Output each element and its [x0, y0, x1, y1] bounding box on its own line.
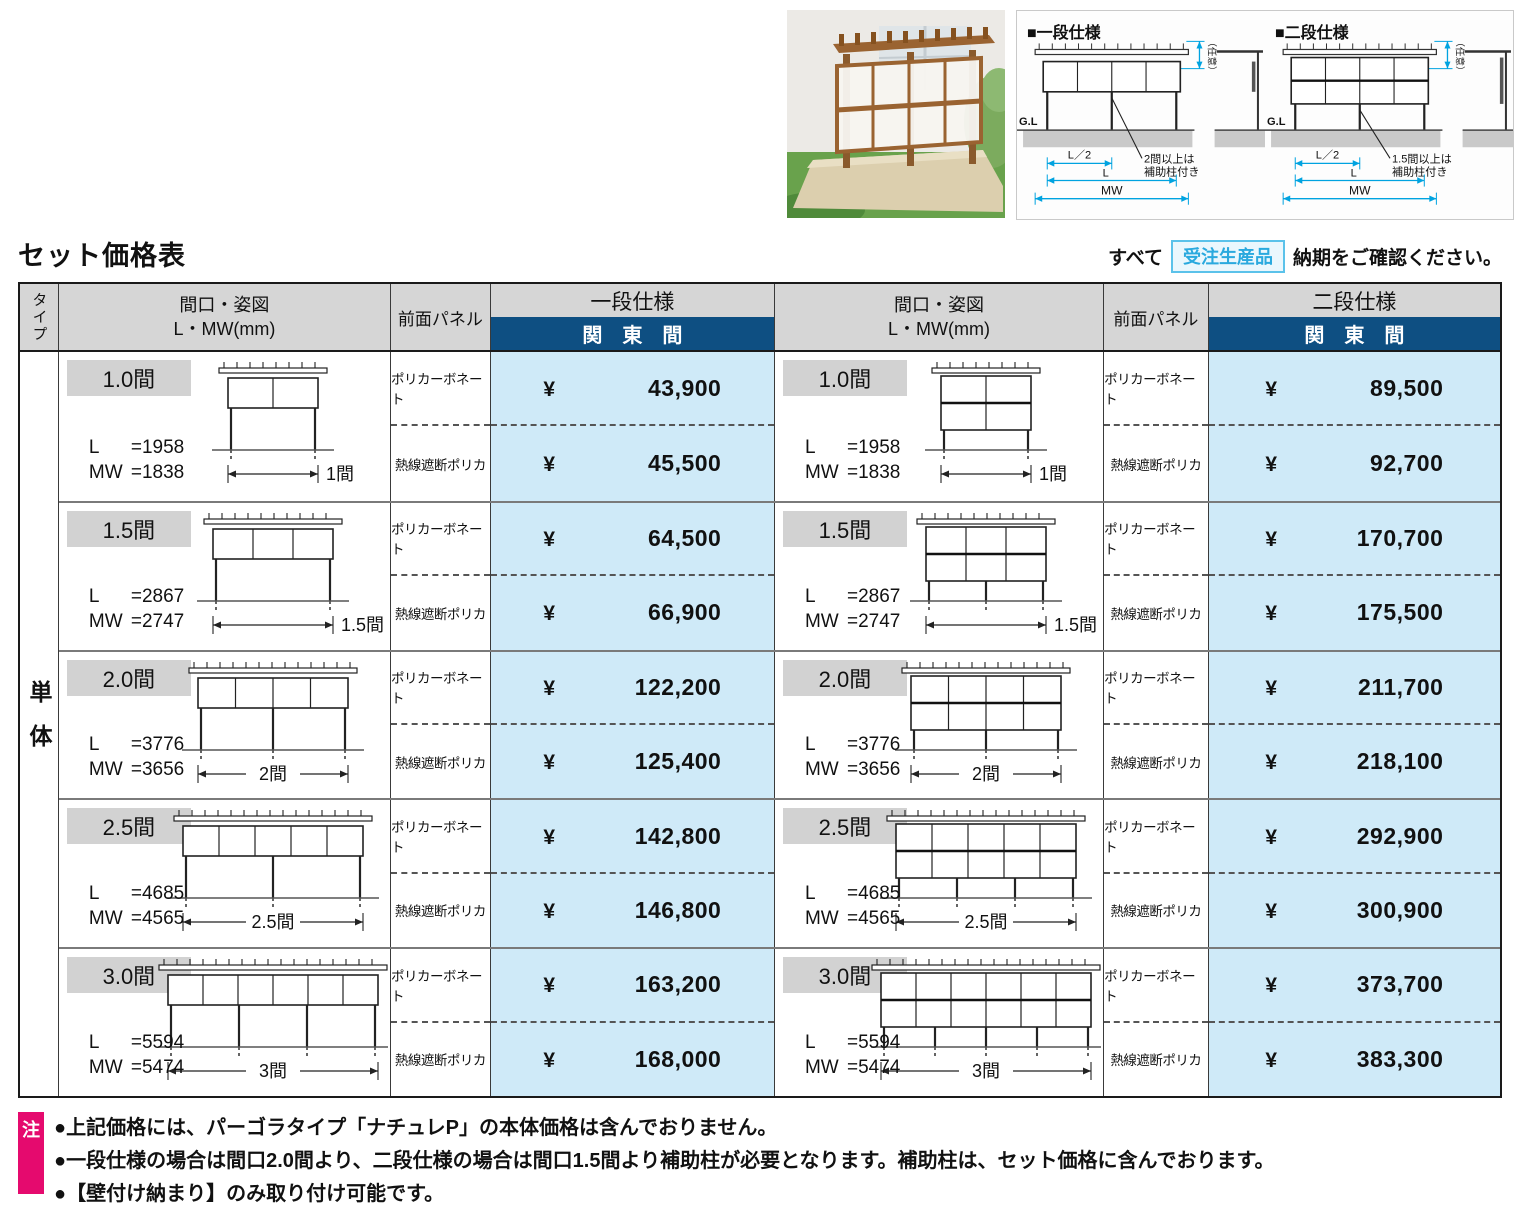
table-row: 1.0間 1間 L =1958 MW =1838 ポリカーボネート 熱線遮断ポリ…	[59, 352, 1500, 501]
header-one-tier: 一段仕様 関 東 間	[491, 284, 775, 350]
price-value: 373,700	[1357, 971, 1444, 998]
price-cell-two-tier: ¥373,700 ¥383,300	[1209, 949, 1500, 1096]
table-header: タイプ 間口・姿図 L・MW(mm) 前面パネル 一段仕様 関 東 間 間口・姿…	[20, 284, 1500, 352]
dim-l-name: L	[89, 435, 131, 460]
yen-sign: ¥	[543, 974, 555, 998]
panel-type-cell-one-tier: ポリカーボネート 熱線遮断ポリカ	[391, 352, 491, 501]
yen-sign: ¥	[1265, 974, 1277, 998]
price-value: 64,500	[648, 525, 721, 552]
dim-l-name: L	[805, 881, 847, 906]
table-row: 1.5間 1.5間 L =2867 MW =2747 ポリカーボネート 熱線遮断…	[59, 501, 1500, 650]
dim-l-name: L	[805, 435, 847, 460]
svg-text:3間: 3間	[259, 1061, 287, 1081]
dim-l-value: =4685	[847, 881, 900, 906]
table-row: 2.0間 2間 L =3776 MW =3656 ポリカーボネート 熱線遮断ポリ…	[59, 650, 1500, 799]
price-cell-one-tier: ¥163,200 ¥168,000	[491, 949, 775, 1096]
price-value: 383,300	[1357, 1046, 1444, 1073]
dim-l-value: =1958	[847, 435, 900, 460]
dim-l-value: =5594	[847, 1030, 900, 1055]
yen-sign: ¥	[543, 677, 555, 701]
panel-type-cell-one-tier: ポリカーボネート 熱線遮断ポリカ	[391, 949, 491, 1096]
yen-sign: ¥	[543, 602, 555, 626]
price-cell-one-tier: ¥64,500 ¥66,900	[491, 503, 775, 650]
dim-mw-value: =4565	[131, 906, 184, 931]
panel-type-polycarbonate: ポリカーボネート	[1104, 652, 1208, 725]
panel-type-heatblock: 熱線遮断ポリカ	[1104, 874, 1208, 947]
svg-text:（任意）: （任意）	[1206, 37, 1218, 75]
panel-type-cell-two-tier: ポリカーボネート 熱線遮断ポリカ	[1104, 800, 1209, 947]
facade-sketch-one-tier: 1間	[158, 354, 388, 496]
svg-text:MW: MW	[1101, 184, 1123, 198]
dim-mw-name: MW	[805, 906, 847, 931]
order-note-prefix: すべて	[1108, 243, 1163, 270]
price-value: 92,700	[1370, 450, 1443, 477]
price-cell-two-tier: ¥89,500 ¥92,700	[1209, 352, 1500, 501]
price-value: 175,500	[1357, 599, 1444, 626]
facade-sketch-one-tier: 2間	[158, 654, 388, 796]
yen-sign: ¥	[1265, 677, 1277, 701]
dimension-text: L =3776 MW =3656	[805, 732, 900, 782]
table-body: 単体 1.0間 1間 L =1958 MW =1838 ポリカーボネート 熱線遮…	[20, 352, 1500, 1096]
price-one-tier-poly: ¥43,900	[491, 352, 774, 426]
price-one-tier-poly: ¥163,200	[491, 949, 774, 1022]
dimension-text: L =1958 MW =1838	[805, 435, 900, 485]
svg-text:2.5間: 2.5間	[965, 912, 1008, 932]
dimension-text: L =4685 MW =4565	[805, 881, 900, 931]
svg-text:1.5間以上は: 1.5間以上は	[1392, 152, 1452, 165]
yen-sign: ¥	[543, 826, 555, 850]
svg-text:1間: 1間	[1039, 464, 1067, 484]
facade-sketch-two-tier: 2間	[871, 654, 1101, 796]
spec-diagram-box: ■一段仕様 （任意）G.L2間以上は補助柱付きL／2LMW ■二段仕様 （任意）…	[1016, 10, 1514, 220]
header-facade-two: 間口・姿図 L・MW(mm)	[775, 284, 1104, 350]
yen-sign: ¥	[1265, 900, 1277, 924]
price-value: 125,400	[635, 748, 722, 775]
svg-text:L: L	[1351, 167, 1357, 179]
price-value: 45,500	[648, 450, 721, 477]
panel-type-heatblock: 熱線遮断ポリカ	[391, 725, 490, 798]
panel-type-heatblock: 熱線遮断ポリカ	[391, 576, 490, 649]
header-panel-one-label: 前面パネル	[398, 305, 483, 330]
dim-l-value: =5594	[131, 1030, 184, 1055]
price-value: 218,100	[1357, 748, 1444, 775]
dimension-text: L =3776 MW =3656	[89, 732, 184, 782]
header-facade-line2: L・MW(mm)	[173, 317, 275, 341]
yen-sign: ¥	[543, 453, 555, 477]
svg-text:G.L: G.L	[1267, 116, 1286, 128]
price-value: 163,200	[635, 971, 722, 998]
header-panel-two: 前面パネル	[1104, 284, 1209, 350]
panel-type-cell-one-tier: ポリカーボネート 熱線遮断ポリカ	[391, 652, 491, 799]
order-note: すべて 受注生産品 納期をご確認ください。	[1108, 240, 1502, 273]
panel-type-heatblock: 熱線遮断ポリカ	[1104, 426, 1208, 500]
svg-text:補助柱付き: 補助柱付き	[1392, 164, 1447, 178]
dim-l-name: L	[805, 1030, 847, 1055]
svg-text:（任意）: （任意）	[1454, 37, 1466, 75]
price-cell-two-tier: ¥292,900 ¥300,900	[1209, 800, 1500, 947]
svg-text:MW: MW	[1349, 184, 1371, 198]
facade-cell-two-tier: 1.0間 1間 L =1958 MW =1838	[775, 352, 1104, 501]
panel-type-cell-two-tier: ポリカーボネート 熱線遮断ポリカ	[1104, 503, 1209, 650]
facade-cell-two-tier: 2.5間 2.5間 L =4685 MW =4565	[775, 800, 1104, 947]
panel-type-cell-two-tier: ポリカーボネート 熱線遮断ポリカ	[1104, 652, 1209, 799]
dim-mw-value: =3656	[847, 757, 900, 782]
panel-type-polycarbonate: ポリカーボネート	[391, 800, 490, 873]
facade-sketch-two-tier: 1.5間	[871, 505, 1101, 647]
price-value: 168,000	[635, 1046, 722, 1073]
panel-type-heatblock: 熱線遮断ポリカ	[391, 1023, 490, 1096]
panel-type-cell-two-tier: ポリカーボネート 熱線遮断ポリカ	[1104, 949, 1209, 1096]
dim-mw-value: =2747	[131, 609, 184, 634]
header-two-tier-kanto: 関 東 間	[1209, 317, 1500, 350]
price-one-tier-poly: ¥64,500	[491, 503, 774, 576]
dim-mw-name: MW	[805, 757, 847, 782]
dim-mw-name: MW	[89, 1055, 131, 1080]
yen-sign: ¥	[1265, 1049, 1277, 1073]
dimension-text: L =5594 MW =5474	[805, 1030, 900, 1080]
svg-text:3間: 3間	[972, 1061, 1000, 1081]
page-title: セット価格表	[18, 234, 186, 273]
dim-mw-value: =2747	[847, 609, 900, 634]
panel-type-polycarbonate: ポリカーボネート	[391, 652, 490, 725]
table-row: 3.0間 3間 L =5594 MW =5474 ポリカーボネート 熱線遮断ポリ…	[59, 947, 1500, 1096]
type-value: 単体	[22, 680, 56, 767]
yen-sign: ¥	[1265, 453, 1277, 477]
price-two-tier-poly: ¥292,900	[1209, 800, 1500, 873]
panel-type-cell-one-tier: ポリカーボネート 熱線遮断ポリカ	[391, 503, 491, 650]
dimension-text: L =2867 MW =2747	[89, 584, 184, 634]
price-two-tier-heat: ¥300,900	[1209, 874, 1500, 947]
dim-mw-name: MW	[89, 906, 131, 931]
yen-sign: ¥	[1265, 378, 1277, 402]
note-lines: ●上記価格には、パーゴラタイプ「ナチュレP」の本体価格は含んでおりません。 ●一…	[54, 1112, 1275, 1210]
price-one-tier-poly: ¥142,800	[491, 800, 774, 873]
diagram-one-tier: ■一段仕様 （任意）G.L2間以上は補助柱付きL／2LMW	[1017, 11, 1265, 219]
note-line: ●【壁付け納まり】のみ取り付け可能です。	[54, 1178, 1275, 1210]
yen-sign: ¥	[1265, 751, 1277, 775]
panel-type-polycarbonate: ポリカーボネート	[1104, 800, 1208, 873]
dim-mw-value: =5474	[847, 1055, 900, 1080]
facade-cell-one-tier: 1.0間 1間 L =1958 MW =1838	[59, 352, 391, 501]
header-facade-line1: 間口・姿図	[173, 293, 275, 317]
facade-cell-one-tier: 2.5間 2.5間 L =4685 MW =4565	[59, 800, 391, 947]
facade-cell-one-tier: 3.0間 3間 L =5594 MW =5474	[59, 949, 391, 1096]
svg-text:2間以上は: 2間以上は	[1144, 152, 1194, 165]
yen-sign: ¥	[543, 378, 555, 402]
product-photo-art	[787, 10, 1005, 218]
note-line: ●一段仕様の場合は間口2.0間より、二段仕様の場合は間口1.5間より補助柱が必要…	[54, 1145, 1275, 1178]
price-cell-two-tier: ¥211,700 ¥218,100	[1209, 652, 1500, 799]
panel-type-heatblock: 熱線遮断ポリカ	[1104, 725, 1208, 798]
header-two-tier: 二段仕様 関 東 間	[1209, 284, 1500, 350]
svg-text:1.5間: 1.5間	[1054, 615, 1097, 635]
header-panel-two-label: 前面パネル	[1113, 305, 1198, 330]
facade-cell-two-tier: 3.0間 3間 L =5594 MW =5474	[775, 949, 1104, 1096]
dim-mw-value: =3656	[131, 757, 184, 782]
svg-text:G.L: G.L	[1019, 116, 1038, 128]
header-two-tier-label: 二段仕様	[1209, 284, 1500, 317]
dim-mw-name: MW	[805, 460, 847, 485]
price-one-tier-heat: ¥45,500	[491, 426, 774, 500]
dim-mw-value: =4565	[847, 906, 900, 931]
footnotes: 注 ●上記価格には、パーゴラタイプ「ナチュレP」の本体価格は含んでおりません。 …	[18, 1112, 1502, 1210]
panel-type-polycarbonate: ポリカーボネート	[391, 352, 490, 426]
facade-cell-two-tier: 1.5間 1.5間 L =2867 MW =2747	[775, 503, 1104, 650]
yen-sign: ¥	[543, 751, 555, 775]
price-one-tier-heat: ¥168,000	[491, 1023, 774, 1096]
header-type: タイプ	[20, 284, 59, 350]
price-table: タイプ 間口・姿図 L・MW(mm) 前面パネル 一段仕様 関 東 間 間口・姿…	[18, 282, 1502, 1098]
order-note-suffix: 納期をご確認ください。	[1293, 243, 1502, 270]
panel-type-polycarbonate: ポリカーボネート	[391, 949, 490, 1022]
note-line: ●上記価格には、パーゴラタイプ「ナチュレP」の本体価格は含んでおりません。	[54, 1112, 1275, 1145]
panel-type-heatblock: 熱線遮断ポリカ	[391, 426, 490, 500]
facade-sketch-one-tier: 2.5間	[158, 802, 388, 944]
panel-type-heatblock: 熱線遮断ポリカ	[391, 874, 490, 947]
price-two-tier-poly: ¥170,700	[1209, 503, 1500, 576]
panel-type-polycarbonate: ポリカーボネート	[1104, 949, 1208, 1022]
yen-sign: ¥	[1265, 826, 1277, 850]
price-two-tier-heat: ¥175,500	[1209, 576, 1500, 649]
price-two-tier-poly: ¥89,500	[1209, 352, 1500, 426]
facade-cell-one-tier: 2.0間 2間 L =3776 MW =3656	[59, 652, 391, 799]
svg-text:2間: 2間	[259, 764, 287, 784]
dim-l-name: L	[89, 881, 131, 906]
svg-text:2間: 2間	[972, 764, 1000, 784]
price-value: 89,500	[1370, 375, 1443, 402]
price-one-tier-heat: ¥125,400	[491, 725, 774, 798]
dimension-text: L =2867 MW =2747	[805, 584, 900, 634]
made-to-order-badge: 受注生産品	[1171, 240, 1285, 273]
svg-text:補助柱付き: 補助柱付き	[1144, 164, 1199, 178]
price-value: 146,800	[635, 897, 722, 924]
price-two-tier-poly: ¥211,700	[1209, 652, 1500, 725]
yen-sign: ¥	[543, 900, 555, 924]
svg-text:L／2: L／2	[1316, 148, 1339, 161]
dim-mw-value: =1838	[847, 460, 900, 485]
dim-l-name: L	[89, 732, 131, 757]
facade-cell-one-tier: 1.5間 1.5間 L =2867 MW =2747	[59, 503, 391, 650]
price-value: 211,700	[1358, 674, 1443, 701]
product-photo	[787, 10, 1005, 218]
svg-text:L: L	[1103, 167, 1109, 179]
price-cell-one-tier: ¥142,800 ¥146,800	[491, 800, 775, 947]
dim-mw-name: MW	[805, 1055, 847, 1080]
dimension-text: L =5594 MW =5474	[89, 1030, 184, 1080]
dim-l-value: =3776	[847, 732, 900, 757]
dim-mw-name: MW	[89, 460, 131, 485]
panel-type-polycarbonate: ポリカーボネート	[1104, 352, 1208, 426]
panel-type-polycarbonate: ポリカーボネート	[391, 503, 490, 576]
header-panel-one: 前面パネル	[391, 284, 491, 350]
price-one-tier-heat: ¥66,900	[491, 576, 774, 649]
price-value: 170,700	[1357, 525, 1444, 552]
price-one-tier-heat: ¥146,800	[491, 874, 774, 947]
dim-mw-name: MW	[805, 609, 847, 634]
price-one-tier-poly: ¥122,200	[491, 652, 774, 725]
facade-cell-two-tier: 2.0間 2間 L =3776 MW =3656	[775, 652, 1104, 799]
header-one-tier-label: 一段仕様	[491, 284, 774, 317]
price-value: 300,900	[1357, 897, 1444, 924]
dimension-text: L =1958 MW =1838	[89, 435, 184, 485]
panel-type-heatblock: 熱線遮断ポリカ	[1104, 576, 1208, 649]
panel-type-cell-two-tier: ポリカーボネート 熱線遮断ポリカ	[1104, 352, 1209, 501]
svg-text:1.5間: 1.5間	[341, 615, 384, 635]
price-two-tier-heat: ¥92,700	[1209, 426, 1500, 500]
dim-mw-value: =1838	[131, 460, 184, 485]
price-two-tier-poly: ¥373,700	[1209, 949, 1500, 1022]
facade-sketch-one-tier: 3間	[158, 951, 388, 1093]
panel-type-heatblock: 熱線遮断ポリカ	[1104, 1023, 1208, 1096]
header-facade-one: 間口・姿図 L・MW(mm)	[59, 284, 391, 350]
dim-l-value: =1958	[131, 435, 184, 460]
dim-l-name: L	[805, 584, 847, 609]
facade-sketch-two-tier: 2.5間	[871, 802, 1101, 944]
price-value: 66,900	[648, 599, 721, 626]
yen-sign: ¥	[1265, 528, 1277, 552]
price-cell-two-tier: ¥170,700 ¥175,500	[1209, 503, 1500, 650]
table-row: 2.5間 2.5間 L =4685 MW =4565 ポリカーボネート 熱線遮断…	[59, 798, 1500, 947]
svg-text:2.5間: 2.5間	[251, 912, 294, 932]
price-cell-one-tier: ¥43,900 ¥45,500	[491, 352, 775, 501]
price-value: 43,900	[648, 375, 721, 402]
price-value: 122,200	[635, 674, 722, 701]
price-value: 142,800	[635, 823, 722, 850]
price-value: 292,900	[1357, 823, 1444, 850]
header-facade2-line1: 間口・姿図	[888, 293, 990, 317]
header-one-tier-kanto: 関 東 間	[491, 317, 774, 350]
svg-text:1間: 1間	[326, 464, 354, 484]
note-marker: 注	[18, 1112, 44, 1194]
yen-sign: ¥	[1265, 602, 1277, 626]
header-type-label: タイプ	[28, 292, 49, 343]
svg-text:L／2: L／2	[1068, 148, 1091, 161]
dim-mw-name: MW	[89, 757, 131, 782]
catalog-sheet: ■一段仕様 （任意）G.L2間以上は補助柱付きL／2LMW ■二段仕様 （任意）…	[0, 0, 1520, 1210]
dim-l-value: =4685	[131, 881, 184, 906]
dim-l-value: =2867	[847, 584, 900, 609]
diagram-two-tier: ■二段仕様 （任意）G.L1.5間以上は補助柱付きL／2LMW	[1265, 11, 1513, 219]
yen-sign: ¥	[543, 1049, 555, 1073]
facade-sketch-two-tier: 3間	[871, 951, 1101, 1093]
dim-l-name: L	[89, 584, 131, 609]
dimension-text: L =4685 MW =4565	[89, 881, 184, 931]
price-two-tier-heat: ¥218,100	[1209, 725, 1500, 798]
dim-mw-value: =5474	[131, 1055, 184, 1080]
dim-l-value: =3776	[131, 732, 184, 757]
dim-mw-name: MW	[89, 609, 131, 634]
rows-container: 1.0間 1間 L =1958 MW =1838 ポリカーボネート 熱線遮断ポリ…	[59, 352, 1500, 1096]
panel-type-cell-one-tier: ポリカーボネート 熱線遮断ポリカ	[391, 800, 491, 947]
price-two-tier-heat: ¥383,300	[1209, 1023, 1500, 1096]
panel-type-polycarbonate: ポリカーボネート	[1104, 503, 1208, 576]
dim-l-name: L	[89, 1030, 131, 1055]
price-cell-one-tier: ¥122,200 ¥125,400	[491, 652, 775, 799]
yen-sign: ¥	[543, 528, 555, 552]
facade-sketch-one-tier: 1.5間	[158, 505, 388, 647]
dim-l-name: L	[805, 732, 847, 757]
type-column: 単体	[20, 352, 59, 1096]
header-facade2-line2: L・MW(mm)	[888, 317, 990, 341]
facade-sketch-two-tier: 1間	[871, 354, 1101, 496]
dim-l-value: =2867	[131, 584, 184, 609]
